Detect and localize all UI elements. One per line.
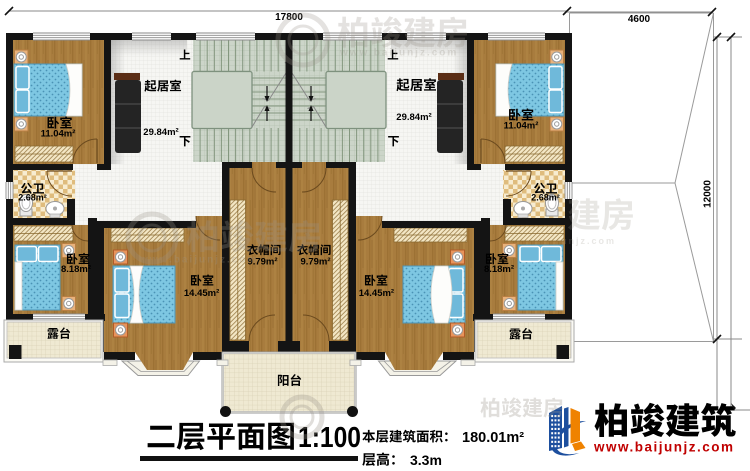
svg-text:unjz.com: unjz.com <box>561 236 616 246</box>
svg-text:8.18m²: 8.18m² <box>61 264 91 275</box>
svg-text:11.04m²: 11.04m² <box>504 120 539 131</box>
svg-text:8.18m²: 8.18m² <box>484 264 514 275</box>
svg-text:www.baijunjz.com: www.baijunjz.com <box>139 255 258 266</box>
svg-text:29.84m²: 29.84m² <box>143 127 178 138</box>
svg-text:180.01m²: 180.01m² <box>462 430 524 446</box>
svg-text:www.baijunjz.com: www.baijunjz.com <box>593 439 735 454</box>
svg-text:12000: 12000 <box>703 180 714 208</box>
svg-text:2.68m²: 2.68m² <box>18 193 47 203</box>
svg-text:2.68m²: 2.68m² <box>531 193 560 203</box>
svg-text:9.79m²: 9.79m² <box>300 256 330 267</box>
svg-text:3.3m: 3.3m <box>410 452 442 468</box>
svg-text:29.84m²: 29.84m² <box>396 112 431 123</box>
svg-text:14.45m²: 14.45m² <box>359 288 394 299</box>
svg-text:www.baijunjz.com: www.baijunjz.com <box>339 48 458 59</box>
svg-text:14.45m²: 14.45m² <box>184 288 219 299</box>
svg-text:4600: 4600 <box>628 14 651 25</box>
svg-text:11.04m²: 11.04m² <box>41 128 76 139</box>
